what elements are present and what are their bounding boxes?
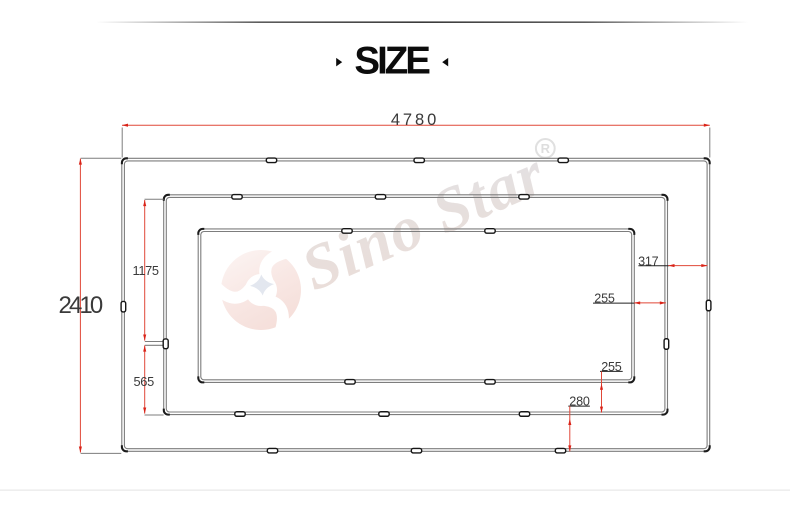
svg-text:317: 317	[638, 254, 659, 268]
svg-text:255: 255	[601, 360, 622, 374]
svg-text:2410: 2410	[59, 292, 103, 319]
svg-text:565: 565	[134, 374, 155, 389]
svg-text:255: 255	[594, 292, 615, 306]
svg-text:4780: 4780	[391, 111, 439, 129]
svg-text:SIZE: SIZE	[354, 40, 430, 83]
svg-text:R: R	[541, 141, 551, 156]
svg-text:280: 280	[569, 395, 590, 409]
svg-text:1175: 1175	[133, 263, 159, 278]
